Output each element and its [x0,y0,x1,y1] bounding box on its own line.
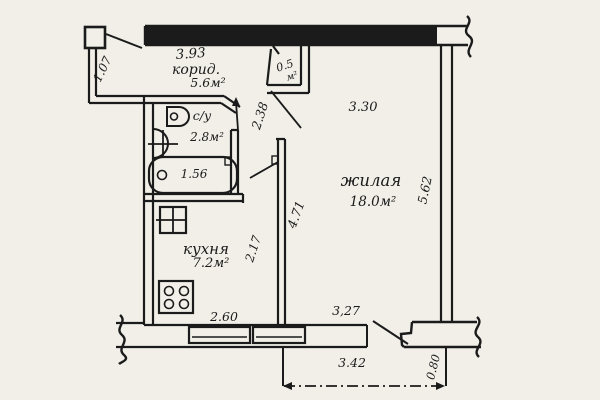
dim-kitchen-window: 2.60 [209,309,238,324]
living-room-door-swing [271,91,301,128]
area-living: 18.0м² [350,194,397,210]
kitchen-living-wall [276,139,285,325]
floor-plan-canvas: 3.93 корид. 5.6м² 1.07 2.38 0.5 м² с/у 2… [0,0,600,400]
dim-living-window: 3,27 [332,303,360,318]
dim-entrance-width: 1.07 [90,54,114,84]
floor-plan-page: 3.93 корид. 5.6м² 1.07 2.38 0.5 м² с/у 2… [0,0,600,400]
dim-living-top: 3.30 [349,100,378,115]
area-bathroom: 2.8м² [189,130,224,144]
wall-break-top-right [466,16,472,57]
stove-symbol [159,281,193,313]
room-label-living: жилая [341,171,402,190]
area-closet-unit: м² [285,70,300,84]
entrance-pier [85,27,105,48]
bottom-right-wall-block [401,317,481,357]
dim-living-left: 4.71 [284,199,308,231]
entrance-door-swing [106,34,142,48]
east-wall [441,45,452,322]
toilet-symbol [167,107,189,126]
kitchen-sink-symbol [156,207,186,233]
west-wall [144,96,153,325]
dim-bathtub-length: 1.56 [181,167,208,181]
corridor-bottom-wall [89,96,224,103]
living-room-window [253,327,305,343]
top-wall-filled [145,26,437,45]
dim-living-right: 5.62 [414,175,434,205]
kitchen-door-swing [250,162,278,178]
bathroom-kitchen-wall [144,194,243,203]
dim-balcony-depth: 0.80 [423,353,443,381]
dim-corridor-passage: 2.38 [248,100,271,132]
area-kitchen: 7.2м² [193,256,230,271]
dim-kitchen-wall: 2.17 [242,234,264,265]
room-label-bathroom: с/у [193,108,212,123]
area-corridor: 5.6м² [190,75,225,90]
interior-walls [144,45,309,325]
dim-balcony-width: 3.42 [338,355,366,370]
dim-corridor-length: 3.93 [175,45,206,63]
kitchen-window [189,327,250,343]
